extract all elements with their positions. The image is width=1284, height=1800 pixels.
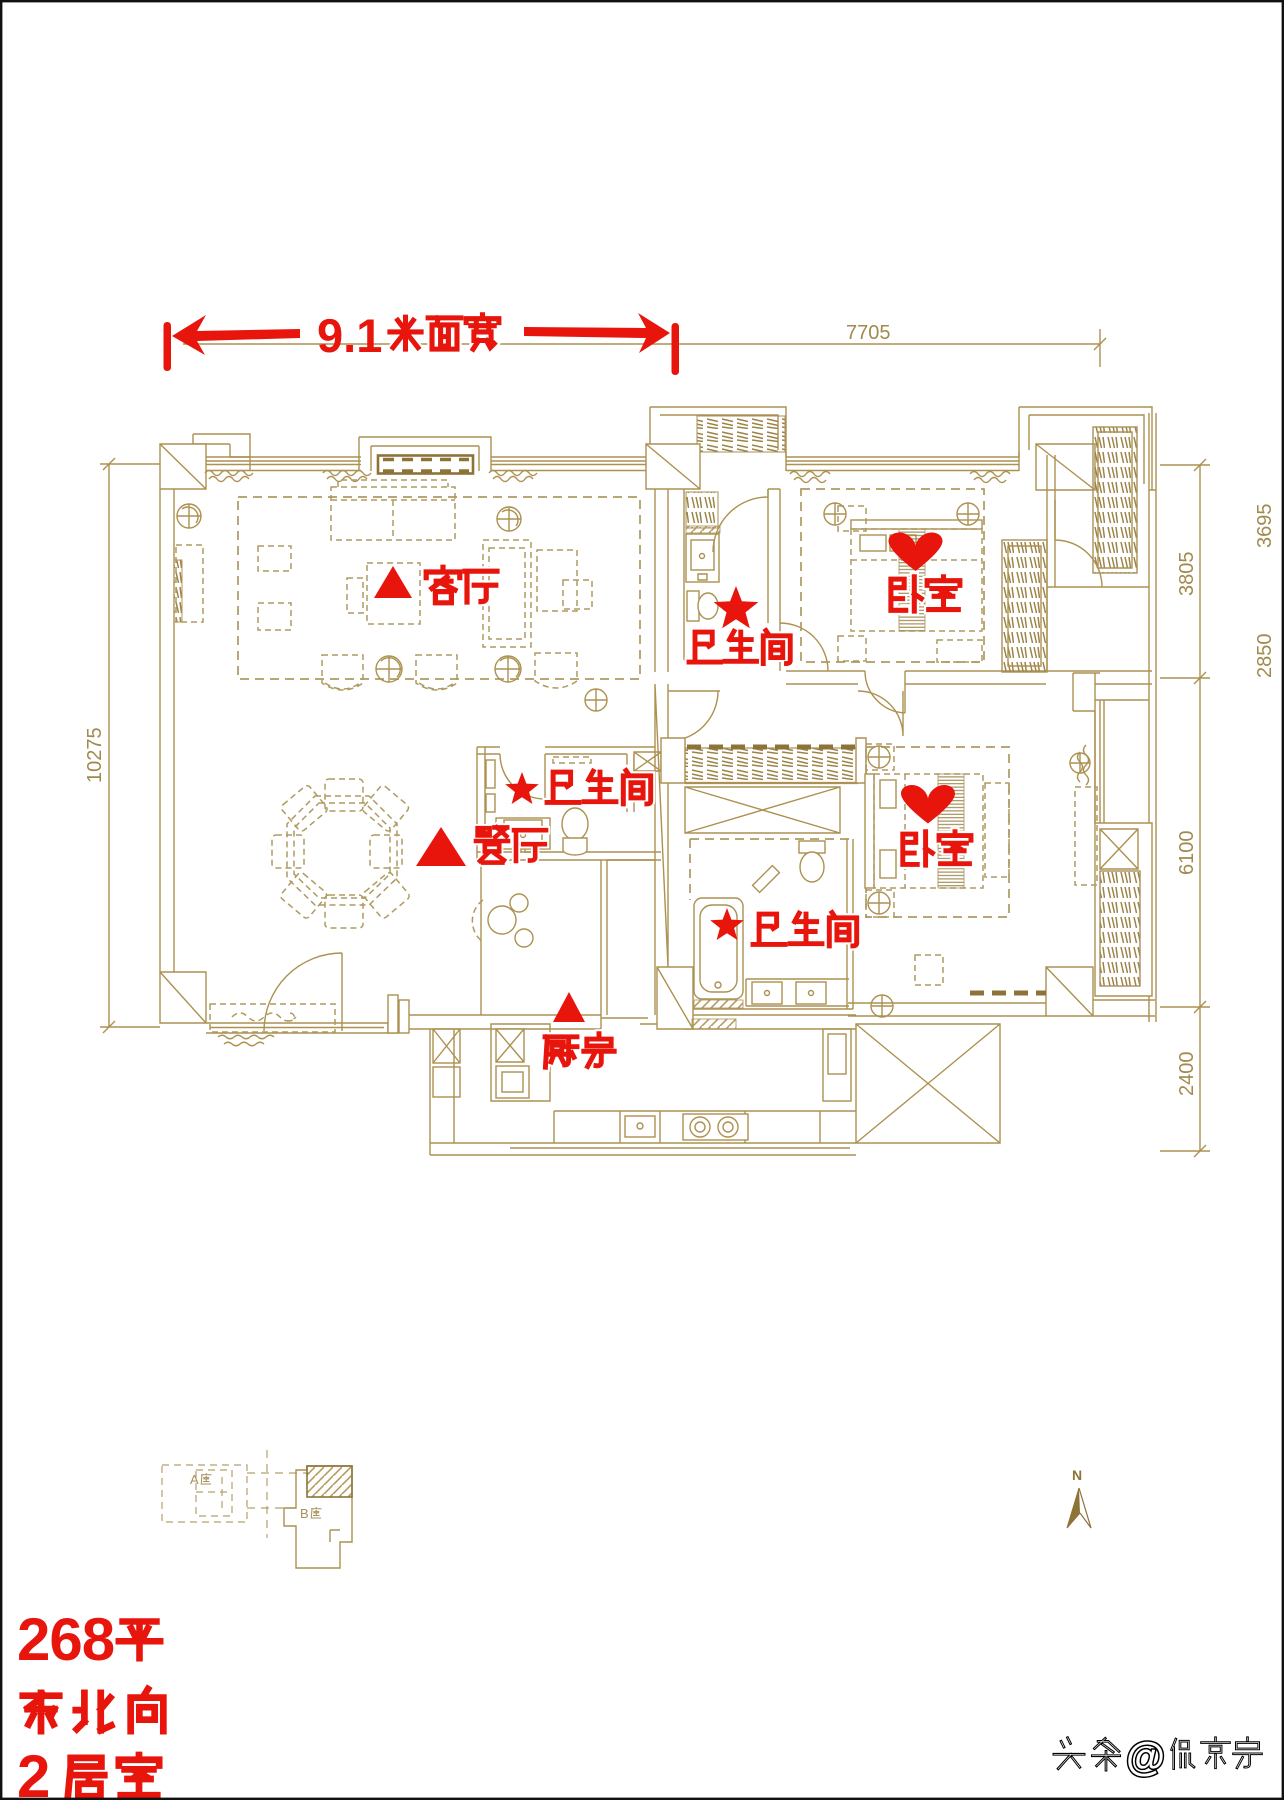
svg-text:3805: 3805 (1176, 552, 1198, 597)
svg-text:6100: 6100 (1176, 831, 1198, 876)
svg-text:A: A (190, 1472, 199, 1487)
svg-text:9.1: 9.1 (317, 309, 382, 362)
svg-text:@: @ (1126, 1735, 1165, 1779)
svg-text:7705: 7705 (846, 322, 891, 344)
svg-text:2: 2 (17, 1743, 50, 1800)
svg-text:2400: 2400 (1176, 1052, 1198, 1097)
svg-text:3695: 3695 (1254, 504, 1276, 549)
svg-text:268: 268 (17, 1606, 114, 1673)
svg-text:10275: 10275 (84, 727, 106, 783)
svg-text:N: N (1072, 1467, 1082, 1483)
svg-text:2850: 2850 (1254, 634, 1276, 679)
svg-text:B: B (300, 1506, 309, 1521)
